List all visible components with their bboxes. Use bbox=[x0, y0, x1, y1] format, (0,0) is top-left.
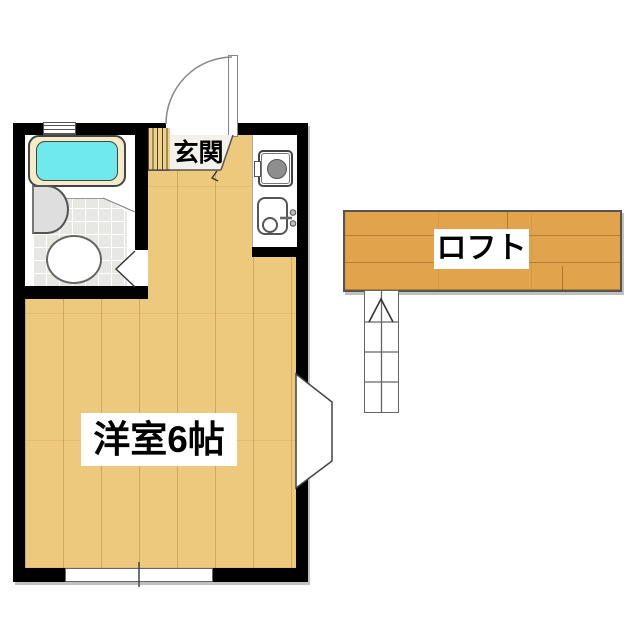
laundry-nook-wall bbox=[252, 247, 308, 257]
toilet bbox=[46, 235, 102, 284]
bathroom-wall bbox=[13, 286, 148, 299]
floor-plan-canvas: 玄関 洋室6帖 ロフト bbox=[0, 0, 640, 640]
bathtub-water bbox=[36, 141, 118, 181]
washing-machine-drum bbox=[267, 159, 287, 179]
bathroom-wall bbox=[135, 123, 148, 250]
wash-basin bbox=[257, 197, 288, 235]
loft-plank-joint bbox=[562, 266, 563, 292]
washing-machine-tap bbox=[254, 161, 261, 177]
entrance-door-swing-arc bbox=[166, 57, 232, 124]
entrance-label: 玄関 bbox=[170, 139, 227, 167]
basin-drain bbox=[262, 217, 278, 233]
bathroom-vent-window bbox=[43, 122, 76, 135]
entrance-door-opening bbox=[166, 123, 233, 135]
bathroom-door-opening bbox=[135, 250, 148, 286]
south-window bbox=[65, 568, 213, 582]
washing-machine bbox=[258, 150, 293, 187]
entrance-step bbox=[148, 128, 170, 171]
laundry-nook bbox=[252, 135, 297, 247]
loft-label: ロフト bbox=[434, 229, 529, 269]
entrance-door-leaf bbox=[228, 55, 238, 137]
main-room-label: 洋室6帖 bbox=[81, 413, 237, 466]
bathroom bbox=[25, 135, 135, 286]
loft-ladder bbox=[364, 290, 399, 413]
bathtub bbox=[28, 135, 126, 187]
washing-machine-lid bbox=[261, 153, 290, 184]
